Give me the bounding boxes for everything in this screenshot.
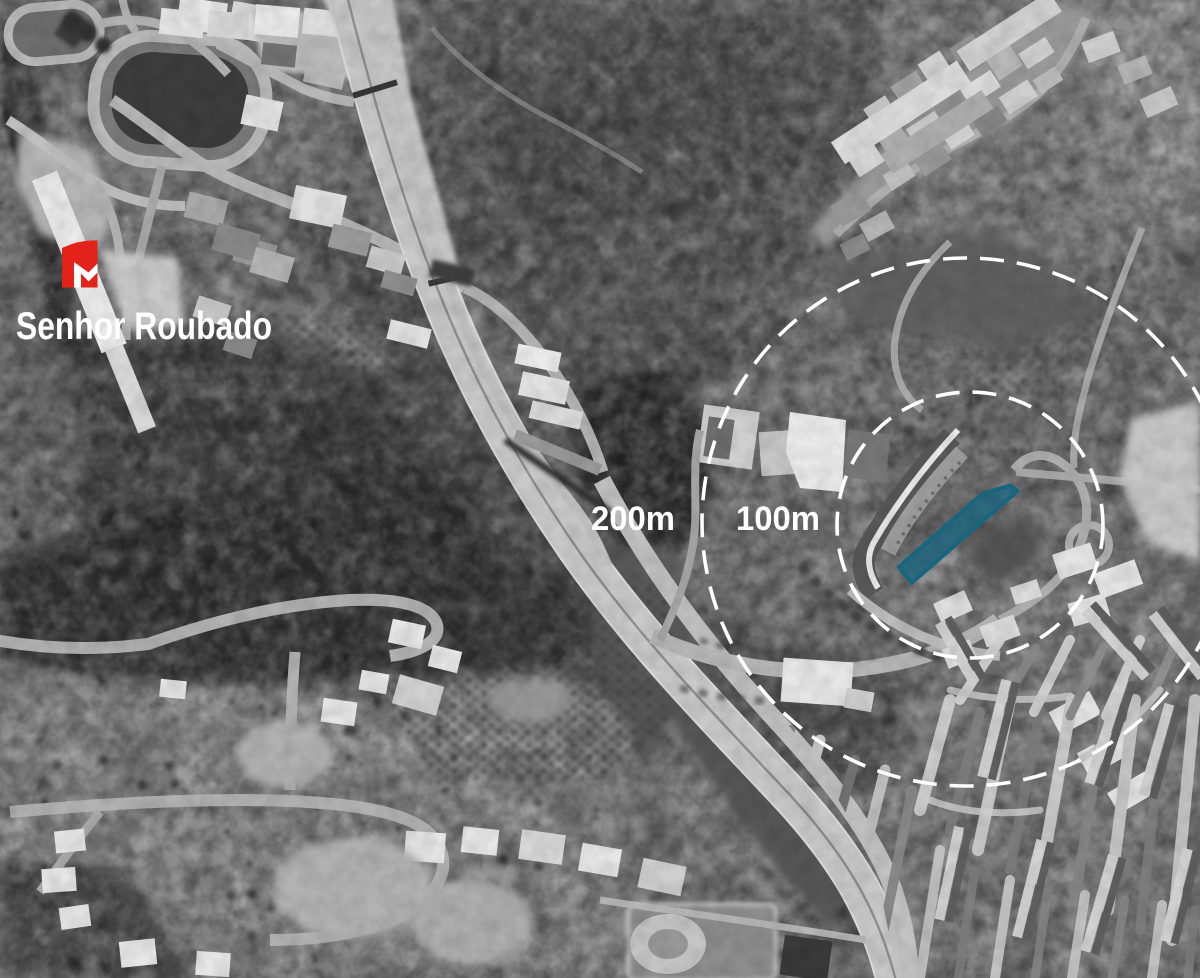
svg-text:100m: 100m (736, 500, 820, 538)
svg-text:200m: 200m (591, 500, 675, 538)
svg-text:Senhor Roubado: Senhor Roubado (16, 305, 272, 348)
